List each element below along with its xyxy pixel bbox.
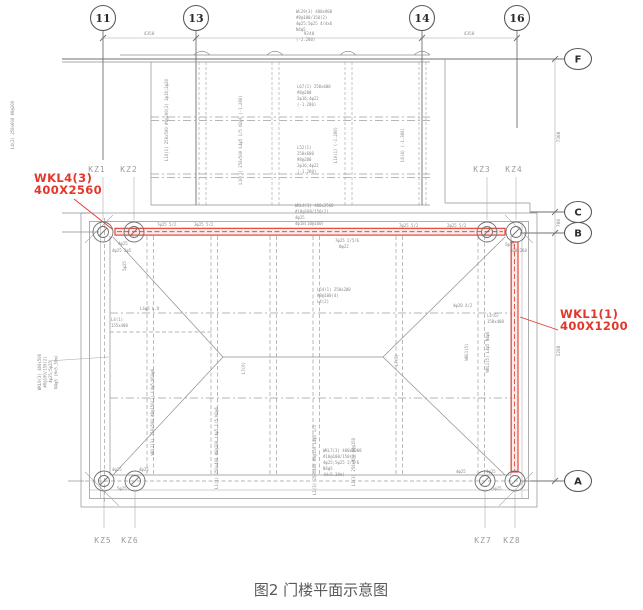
upper-annotations: WL29(3) 400x900 #8@100/150(2) 4φ25;5φ25 … bbox=[10, 9, 405, 185]
annotation-text: WKL1(5) L4φ5 N4φ6 bbox=[485, 331, 490, 373]
kz-label: KZ8 bbox=[503, 536, 520, 545]
annotation-text: 3φ25 5/2 bbox=[194, 222, 214, 227]
kz-label: KZ2 bbox=[120, 165, 137, 174]
annotation-text: 4φ25 bbox=[295, 215, 305, 220]
wkl1-leader-line bbox=[520, 317, 558, 330]
kz-label: KZ3 bbox=[473, 165, 490, 174]
annotation-text: 5φ25 bbox=[505, 242, 515, 247]
annotation-text: WKL1(5) bbox=[464, 344, 469, 361]
annotation-text: 7φ25 5/2 bbox=[399, 223, 419, 228]
annotation-text: 8φ22 bbox=[339, 244, 349, 249]
dimension-label: 700 bbox=[556, 219, 562, 227]
annotation-text: WKL2(3) 250x500 #8@150(2) L4φ5;N10φ6 bbox=[150, 368, 155, 455]
annotation-text: 7φ25 5/2 bbox=[157, 222, 177, 227]
grid-bubble-label: 16 bbox=[509, 12, 525, 25]
annotation-text: 5φ25 bbox=[492, 486, 502, 491]
kz-label: KZ6 bbox=[121, 536, 138, 545]
annotation-text: L7(6) bbox=[394, 354, 399, 366]
annotation-text: L4(1) bbox=[111, 317, 123, 322]
annotation-text: #8@100/150(2) bbox=[43, 356, 48, 387]
annotation-text: WKL7(3) 400x2060 bbox=[323, 448, 362, 453]
grid-bubble-label: 14 bbox=[414, 12, 430, 25]
grid-bubble-label: 11 bbox=[95, 12, 110, 25]
wkl1-label-line2: 400X1200 bbox=[560, 319, 628, 333]
dimension-label: 4350 bbox=[144, 31, 155, 37]
annotation-text: 4φ25 bbox=[118, 241, 128, 246]
annotation-text: #8@100/150(2) bbox=[296, 15, 327, 20]
break-mark bbox=[340, 51, 356, 55]
annotation-text: N4φ5 (H=5.30m) bbox=[54, 355, 59, 389]
annotation-text: 2φ25 5/2 bbox=[447, 223, 467, 228]
annotation-text: N4φ5 bbox=[323, 466, 333, 471]
annotation-text: (-2.280) bbox=[296, 37, 315, 42]
dimension-label: 5280 bbox=[556, 345, 562, 356]
upper-structure bbox=[62, 51, 530, 213]
annotation-text: 4φ25 bbox=[112, 467, 122, 472]
annotation-text: 4φ25;5φ25 4/4x6 bbox=[296, 21, 333, 26]
annotation-text: 5φ25 bbox=[117, 486, 127, 491]
annotation-text: 4φ25;5φ25 bbox=[48, 361, 53, 383]
annotation-text: 4φ20 4/2 bbox=[453, 303, 473, 308]
annotation-text: WKL4(3) 400x2560 bbox=[295, 203, 334, 208]
annotation-text: 155x400 bbox=[111, 323, 128, 328]
kz-label: KZ4 bbox=[505, 165, 522, 174]
grid-bubble-label: F bbox=[575, 55, 582, 66]
annotation-text: 2φ16;4φ22 bbox=[297, 163, 319, 168]
annotation-text: #8@200 bbox=[297, 90, 312, 95]
grid-bubble-label: 13 bbox=[188, 12, 203, 25]
annotation-text: L7(6) bbox=[241, 362, 246, 374]
kz-label: KZ5 bbox=[94, 536, 111, 545]
annotation-text: 5φ25 bbox=[122, 261, 127, 271]
annotation-text: 4φ25 bbox=[456, 469, 466, 474]
annotation-text: 7φ25 2/5/6 bbox=[335, 238, 360, 243]
plan-columns bbox=[93, 222, 526, 491]
annotation-text: 250x600 bbox=[297, 151, 314, 156]
plan-drawing-svg: 4350 9240 4350 7300 700 5280 11 13 14 16 bbox=[0, 0, 643, 610]
wkl4-label-line2: 400X2560 bbox=[34, 183, 102, 197]
annotation-text: L4(6) bbox=[487, 313, 499, 318]
annotation-text: L6(4) (-1.380) bbox=[400, 128, 405, 162]
kz-label: KZ7 bbox=[474, 536, 491, 545]
plan-annotations: WKL4(3) 400x2560 #10@100/150(2) 4φ25 4φ1… bbox=[37, 203, 527, 495]
annotation-text: 4φ25 2φ5 bbox=[112, 248, 132, 253]
annotation-text: L1(3) 250x400 #8@150 bbox=[351, 437, 356, 486]
grid-bubble-label: A bbox=[574, 477, 582, 488]
annotation-text: 4φ25 bbox=[139, 467, 149, 472]
figure-caption: 图2 门楼平面示意图 bbox=[254, 581, 388, 599]
annotation-text: N4φ5 bbox=[296, 27, 306, 32]
column-marker bbox=[506, 222, 526, 242]
annotation-text: 4φ25 bbox=[486, 469, 496, 474]
annotation-text: L52(1) bbox=[297, 145, 311, 150]
annotation-text: WKL9(3) 400x500 bbox=[37, 353, 42, 390]
annotation-text: L10(1) 250x500 #8@200(2) 2φ16;2φ20 bbox=[164, 78, 169, 160]
grid-bubble-label: B bbox=[574, 229, 582, 240]
annotation-text: (-1.280) bbox=[297, 102, 316, 107]
annotation-text: 400x260 bbox=[510, 248, 527, 253]
annotation-text: L10(1) (-1.280) bbox=[333, 127, 338, 163]
annotation-text: L54(1) 250x200 bbox=[317, 287, 351, 292]
annotation-text: L4φ5 L.O bbox=[140, 306, 160, 311]
annotation-text: L10(1) 250x500 L4φ5 1/5 N2φ6 (-1.280) bbox=[238, 95, 243, 184]
annotation-text: L4(2) bbox=[317, 299, 329, 304]
annotation-text: L1(3) 250x400 #8@150 L4φ5 1/5 bbox=[312, 424, 317, 494]
right-dimension-line: 7300 700 5280 bbox=[552, 56, 562, 484]
figure-canvas: 4350 9240 4350 7300 700 5280 11 13 14 16 bbox=[0, 0, 643, 610]
annotation-text: #8@100(4) bbox=[317, 293, 339, 298]
annotation-text: WL29(3) 400x900 bbox=[296, 9, 333, 14]
annotation-text: 2φ16;4φ22 bbox=[297, 96, 319, 101]
annotation-text: (-1.280) bbox=[297, 169, 316, 174]
break-mark bbox=[267, 51, 283, 55]
annotation-text: (H=5.30m) bbox=[323, 472, 345, 477]
dimension-label: 7300 bbox=[556, 131, 562, 142]
dimension-label: 4350 bbox=[464, 31, 475, 37]
wkl4-leader-line bbox=[74, 199, 112, 229]
annotation-text: #10@100/150(2) bbox=[295, 209, 329, 214]
grid-bubble-label: C bbox=[574, 208, 581, 219]
annotation-text: L67(1) 250x600 bbox=[297, 84, 331, 89]
annotation-text: #8@200 bbox=[297, 157, 312, 162]
annotation-text: 4φ18(10@100) bbox=[295, 221, 324, 226]
annotation-text: 150x400 bbox=[487, 319, 504, 324]
annotation-text: L4(2) 250x600 #8@200 bbox=[10, 100, 15, 149]
annotation-text: L1(1) 250x400 #8@200 L4φ5 1/5 N2φ6 bbox=[214, 406, 219, 488]
